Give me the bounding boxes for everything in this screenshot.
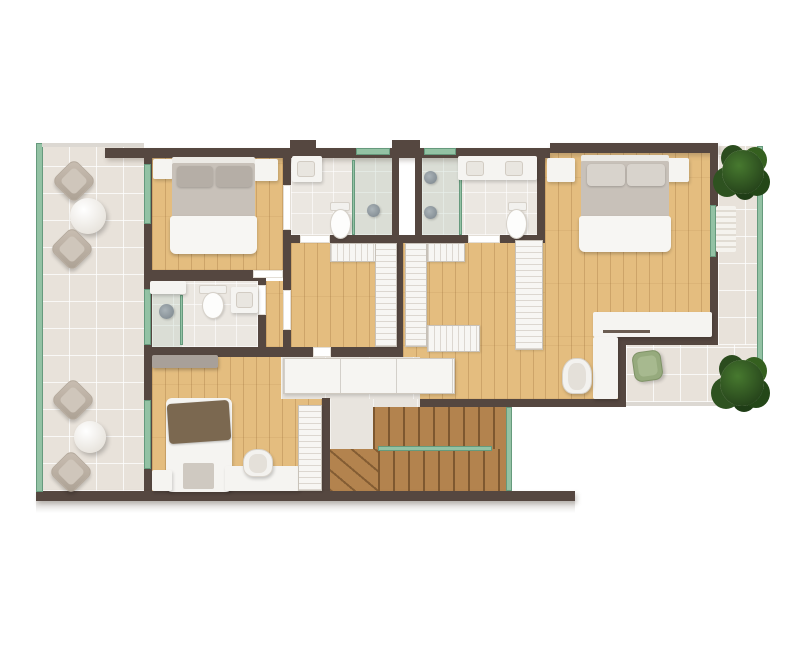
light-well: [399, 150, 415, 243]
window-bathroom-3: [144, 289, 151, 345]
curtain-balcony: [716, 206, 736, 252]
bed-2-blanket: [167, 400, 232, 444]
door-bathroom-1: [300, 235, 330, 243]
hallway-floor-corridor: [330, 399, 373, 449]
wall-nook-horizontal: [608, 337, 718, 345]
sink-bath2-a: [466, 161, 484, 176]
bed-master-pillow-right: [627, 164, 665, 186]
stairs-winder-steps: [330, 449, 378, 491]
window-bedroom-2: [144, 400, 151, 469]
shower-screen-1: [352, 160, 355, 235]
shower-head-bath2-a: [424, 171, 437, 184]
corner-desk-edge: [603, 330, 650, 333]
shower-head-bath3: [159, 304, 174, 319]
shower-1-zone: [352, 158, 392, 235]
window-bathroom-2: [424, 148, 456, 155]
nightstand-b1-right: [254, 159, 278, 181]
wall-top-right: [550, 143, 718, 153]
nightstand-b1-left: [153, 159, 173, 179]
wall-pier-1: [290, 140, 316, 149]
bed-master-pillow-left: [587, 164, 625, 186]
wall-nook-vertical: [618, 345, 626, 399]
wall-bedroom2-hall: [322, 398, 330, 492]
stairs-right-balustrade: [506, 407, 512, 491]
wardrobe-closetR-top: [427, 243, 465, 262]
side-table-2: [74, 421, 106, 453]
wall-master-bottom: [420, 399, 626, 407]
toilet-bath2-bowl: [506, 209, 527, 239]
side-table-1: [70, 198, 106, 234]
window-bathroom-1: [356, 148, 390, 155]
shower-3-zone: [152, 293, 182, 347]
bed-1-pillow-left: [177, 166, 213, 187]
wall-lightwell-right: [415, 150, 422, 243]
wall-bottom: [36, 491, 575, 501]
door-bathroom-3: [258, 285, 266, 315]
door-bedroom-2: [313, 347, 331, 357]
wall-bathroom3-top: [144, 273, 266, 281]
shower-head-bath1: [367, 204, 380, 217]
floor-plan: [0, 0, 800, 650]
bed-2-fold: [183, 463, 214, 489]
corner-desk-top: [593, 312, 712, 337]
stairs-upper-flight: [373, 407, 506, 449]
glass-terrace-wall: [36, 143, 43, 492]
sink-bath3: [236, 292, 253, 308]
plant-bottom-right: [720, 360, 764, 406]
green-lounge-chair: [631, 349, 664, 383]
sink-bath2-b: [505, 161, 523, 176]
hall-sideboard: [283, 358, 455, 394]
sink-bath1: [297, 161, 315, 177]
shower-head-bath2-b: [424, 206, 437, 219]
corner-desk-return: [593, 337, 618, 399]
wardrobe-closetR-left: [405, 243, 427, 347]
wardrobe-closetR-bottom: [427, 325, 480, 352]
wall-pier-2: [392, 140, 420, 149]
shower-screen-3: [180, 295, 183, 345]
wall-lightwell-left: [392, 150, 399, 243]
closet-left-floor-strip: [266, 281, 283, 347]
window-bedroom-1: [144, 164, 151, 224]
terrace-top-edge: [42, 143, 144, 147]
door-closet-left: [283, 290, 291, 330]
dresser-bedroom2: [152, 355, 218, 368]
wall-bathroom2-right: [537, 150, 545, 243]
wardrobe-closetR-right: [515, 240, 543, 350]
toilet-bath3-bowl: [202, 292, 224, 319]
cabinet-bedroom2: [152, 470, 172, 491]
door-bedroom-1-bath: [283, 185, 291, 230]
hallway-floor-strip: [373, 399, 420, 407]
shower-2-zone: [422, 158, 460, 235]
nightstand-master-left: [547, 158, 575, 182]
wardrobe-bedroom2: [298, 405, 322, 491]
stairs-lower-flight: [378, 449, 506, 491]
door-bedroom-1: [253, 270, 283, 278]
building-shadow: [36, 501, 575, 513]
wardrobe-closetL-side: [375, 243, 397, 347]
bed-master-duvet: [579, 216, 671, 252]
stairs-mid-balustrade: [378, 446, 492, 451]
toilet-bath1-bowl: [330, 209, 351, 239]
cabinet-bath3: [150, 281, 186, 294]
plant-top-right: [722, 150, 764, 194]
bed-1-pillow-right: [216, 166, 252, 187]
desk-chair-bedroom2: [243, 449, 273, 477]
bed-1-duvet: [170, 216, 257, 254]
desk-chair-master: [562, 358, 592, 394]
door-bathroom-2: [468, 235, 500, 243]
